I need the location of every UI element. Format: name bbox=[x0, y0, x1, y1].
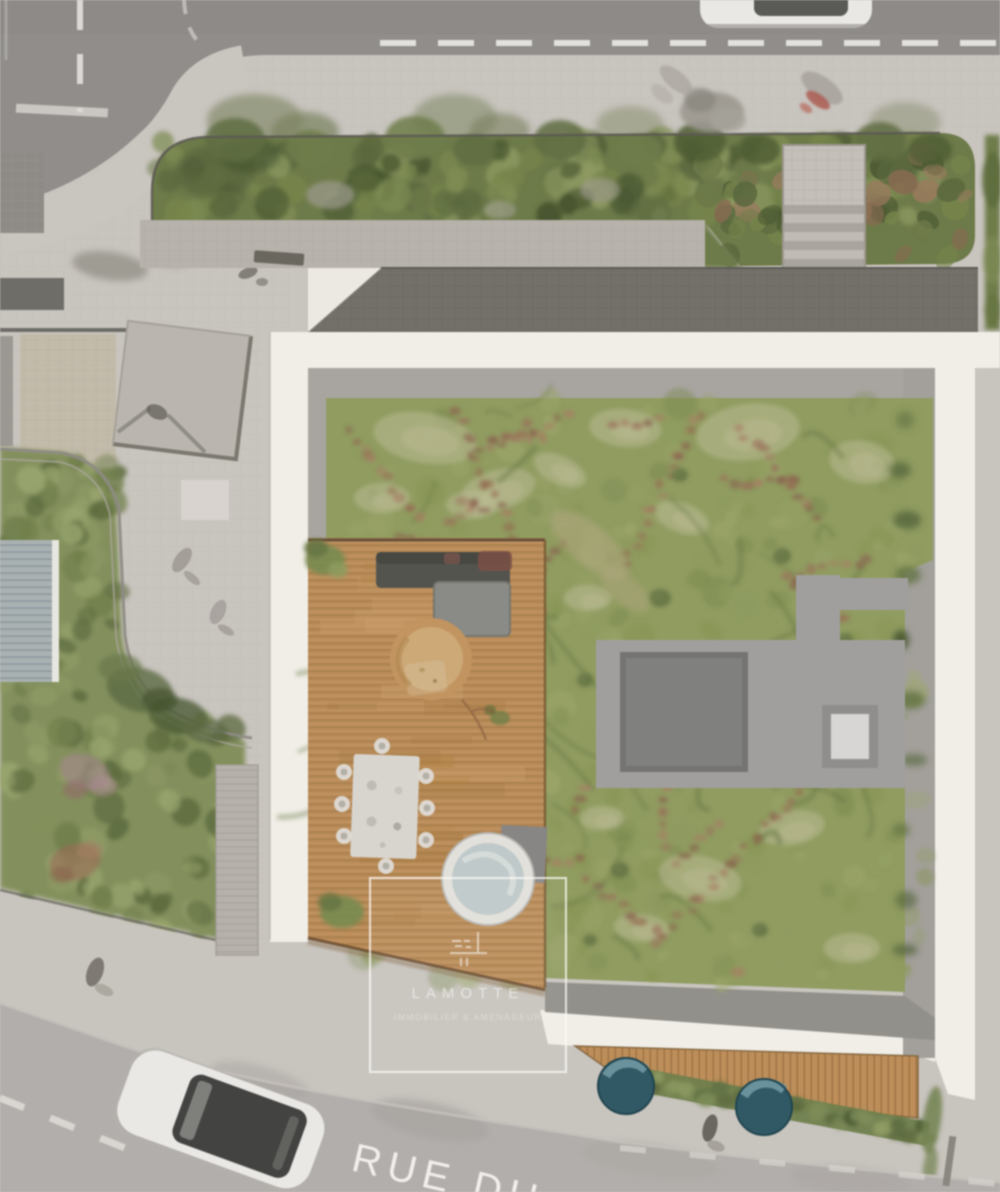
svg-text:LAMOTTE: LAMOTTE bbox=[412, 985, 525, 1002]
svg-text:IMMOBILIER & AMENAGEUR: IMMOBILIER & AMENAGEUR bbox=[394, 1012, 542, 1022]
